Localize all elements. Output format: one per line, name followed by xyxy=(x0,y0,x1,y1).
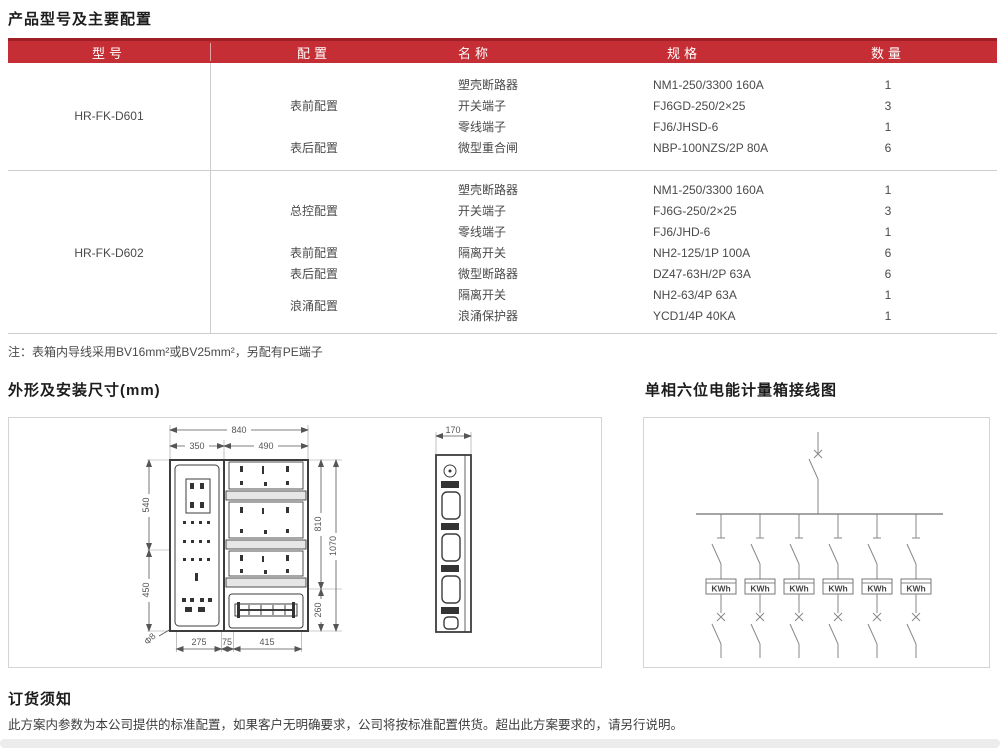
dim-bottom-height: 260 xyxy=(313,602,323,617)
kwh-meter-label: KWh xyxy=(711,584,730,594)
item-qty: 1 xyxy=(853,183,923,197)
dim-mount-mid: 75 xyxy=(222,637,232,647)
wiring-section-title: 单相六位电能计量箱接线图 xyxy=(645,379,837,400)
item-spec: NH2-63/4P 63A xyxy=(653,288,853,302)
table-row: 微型断路器 DZ47-63H/2P 63A 6 xyxy=(418,263,923,284)
ordering-text: 此方案内参数为本公司提供的标准配置，如果客户无明确要求，公司将按标准配置供货。超… xyxy=(8,714,683,733)
dim-meter-height: 810 xyxy=(313,516,323,531)
item-name: 隔离开关 xyxy=(418,286,653,303)
item-spec: NBP-100NZS/2P 80A xyxy=(653,141,853,155)
wire-note: 注：表箱内导线采用BV16mm²或BV25mm²，另配有PE端子 xyxy=(8,343,323,360)
kwh-meter-label: KWh xyxy=(750,584,769,594)
item-name: 零线端子 xyxy=(418,118,653,135)
item-spec: YCD1/4P 40KA xyxy=(653,309,853,323)
front-view xyxy=(170,460,308,631)
col-header-model: 型号 xyxy=(8,43,210,62)
dim-meter-width: 490 xyxy=(258,441,273,451)
config-label: 表后配置 xyxy=(210,263,418,284)
item-spec: DZ47-63H/2P 63A xyxy=(653,267,853,281)
table-row: 微型重合闸 NBP-100NZS/2P 80A 6 xyxy=(418,137,923,158)
table-row: 零线端子 FJ6/JHD-6 1 xyxy=(418,221,923,242)
col-header-qty: 数量 xyxy=(853,43,923,62)
config-label: 表前配置 xyxy=(210,74,418,137)
item-qty: 6 xyxy=(853,267,923,281)
wiring-diagram-svg: KWh KWh KWh KWh KWh KWh xyxy=(644,418,989,667)
item-qty: 3 xyxy=(853,204,923,218)
item-qty: 6 xyxy=(853,246,923,260)
table-row: 隔离开关 NH2-63/4P 63A 1 xyxy=(418,284,923,305)
item-qty: 1 xyxy=(853,309,923,323)
item-spec: NM1-250/3300 160A xyxy=(653,183,853,197)
kwh-meter-label: KWh xyxy=(867,584,886,594)
item-name: 塑壳断路器 xyxy=(418,76,653,93)
model-number: HR-FK-D602 xyxy=(8,179,210,326)
config-table: 型号 配置 名称 规格 数量 HR-FK-D601 表前配置 塑壳断路器 NM1… xyxy=(8,38,997,334)
kwh-meter-label: KWh xyxy=(828,584,847,594)
dim-hole: Φ8 xyxy=(142,631,158,647)
meter-labels: KWh KWh KWh KWh KWh KWh xyxy=(711,584,925,594)
config-group: 表前配置 塑壳断路器 NM1-250/3300 160A 1 开关端子 FJ6G… xyxy=(210,74,923,137)
config-label: 表后配置 xyxy=(210,137,418,158)
outline-drawing-panel: 840 350 490 540 450 810 260 1070 275 75 … xyxy=(8,417,602,668)
table-row: 开关端子 FJ6GD-250/2×25 3 xyxy=(418,95,923,116)
wiring-diagram-panel: KWh KWh KWh KWh KWh KWh xyxy=(643,417,990,668)
item-spec: FJ6/JHD-6 xyxy=(653,225,853,239)
table-row: 塑壳断路器 NM1-250/3300 160A 1 xyxy=(418,74,923,95)
item-name: 微型断路器 xyxy=(418,265,653,282)
dim-overall-width: 840 xyxy=(231,425,246,435)
config-label: 总控配置 xyxy=(210,179,418,242)
dim-door-width: 350 xyxy=(189,441,204,451)
page-title: 产品型号及主要配置 xyxy=(8,8,152,29)
table-row: 开关端子 FJ6G-250/2×25 3 xyxy=(418,200,923,221)
dim-mount-left: 275 xyxy=(191,637,206,647)
item-spec: NM1-250/3300 160A xyxy=(653,78,853,92)
item-name: 浪涌保护器 xyxy=(418,307,653,324)
outline-section-title: 外形及安装尺寸(mm) xyxy=(8,379,161,400)
dim-mount-right: 415 xyxy=(259,637,274,647)
item-qty: 1 xyxy=(853,120,923,134)
item-name: 隔离开关 xyxy=(418,244,653,261)
dimension-lines xyxy=(149,430,471,649)
dim-door-upper: 540 xyxy=(141,497,151,512)
table-row: 浪涌保护器 YCD1/4P 40KA 1 xyxy=(418,305,923,326)
item-spec: FJ6/JHSD-6 xyxy=(653,120,853,134)
item-qty: 1 xyxy=(853,288,923,302)
body-column-divider xyxy=(210,63,211,334)
item-qty: 1 xyxy=(853,78,923,92)
header-column-divider xyxy=(210,43,211,61)
table-header-row: 型号 配置 名称 规格 数量 xyxy=(8,38,997,63)
dim-door-lower: 450 xyxy=(141,582,151,597)
col-header-name: 名称 xyxy=(418,43,653,62)
col-header-config: 配置 xyxy=(210,43,418,62)
table-section-d601: HR-FK-D601 表前配置 塑壳断路器 NM1-250/3300 160A … xyxy=(8,63,997,170)
kwh-meter-label: KWh xyxy=(906,584,925,594)
item-spec: NH2-125/1P 100A xyxy=(653,246,853,260)
config-group: 表前配置 隔离开关 NH2-125/1P 100A 6 xyxy=(210,242,923,263)
item-name: 开关端子 xyxy=(418,202,653,219)
config-group: 总控配置 塑壳断路器 NM1-250/3300 160A 1 开关端子 FJ6G… xyxy=(210,179,923,242)
kwh-meter-label: KWh xyxy=(789,584,808,594)
incoming-feeder xyxy=(696,432,943,514)
ordering-title: 订货须知 xyxy=(8,688,72,709)
config-label: 表前配置 xyxy=(210,242,418,263)
config-group: 表后配置 微型断路器 DZ47-63H/2P 63A 6 xyxy=(210,263,923,284)
footer-bar xyxy=(0,739,1000,748)
meter-branches xyxy=(706,514,931,658)
item-qty: 6 xyxy=(853,141,923,155)
dim-total-height: 1070 xyxy=(328,536,338,556)
side-view xyxy=(436,455,471,632)
col-header-spec: 规格 xyxy=(653,43,853,62)
table-row: 隔离开关 NH2-125/1P 100A 6 xyxy=(418,242,923,263)
config-group: 表后配置 微型重合闸 NBP-100NZS/2P 80A 6 xyxy=(210,137,923,158)
model-number: HR-FK-D601 xyxy=(8,74,210,158)
item-name: 开关端子 xyxy=(418,97,653,114)
table-section-d602: HR-FK-D602 总控配置 塑壳断路器 NM1-250/3300 160A … xyxy=(8,170,997,334)
item-qty: 3 xyxy=(853,99,923,113)
item-spec: FJ6G-250/2×25 xyxy=(653,204,853,218)
item-name: 零线端子 xyxy=(418,223,653,240)
dimension-labels: 840 350 490 540 450 810 260 1070 275 75 … xyxy=(141,425,461,647)
item-spec: FJ6GD-250/2×25 xyxy=(653,99,853,113)
config-label: 浪涌配置 xyxy=(210,284,418,326)
item-name: 微型重合闸 xyxy=(418,139,653,156)
config-group: 浪涌配置 隔离开关 NH2-63/4P 63A 1 浪涌保护器 YCD1/4P … xyxy=(210,284,923,326)
table-row: 零线端子 FJ6/JHSD-6 1 xyxy=(418,116,923,137)
table-row: 塑壳断路器 NM1-250/3300 160A 1 xyxy=(418,179,923,200)
item-name: 塑壳断路器 xyxy=(418,181,653,198)
item-qty: 1 xyxy=(853,225,923,239)
table-body: HR-FK-D601 表前配置 塑壳断路器 NM1-250/3300 160A … xyxy=(8,63,997,334)
outline-drawing-svg: 840 350 490 540 450 810 260 1070 275 75 … xyxy=(9,418,601,667)
dim-depth: 170 xyxy=(445,425,460,435)
